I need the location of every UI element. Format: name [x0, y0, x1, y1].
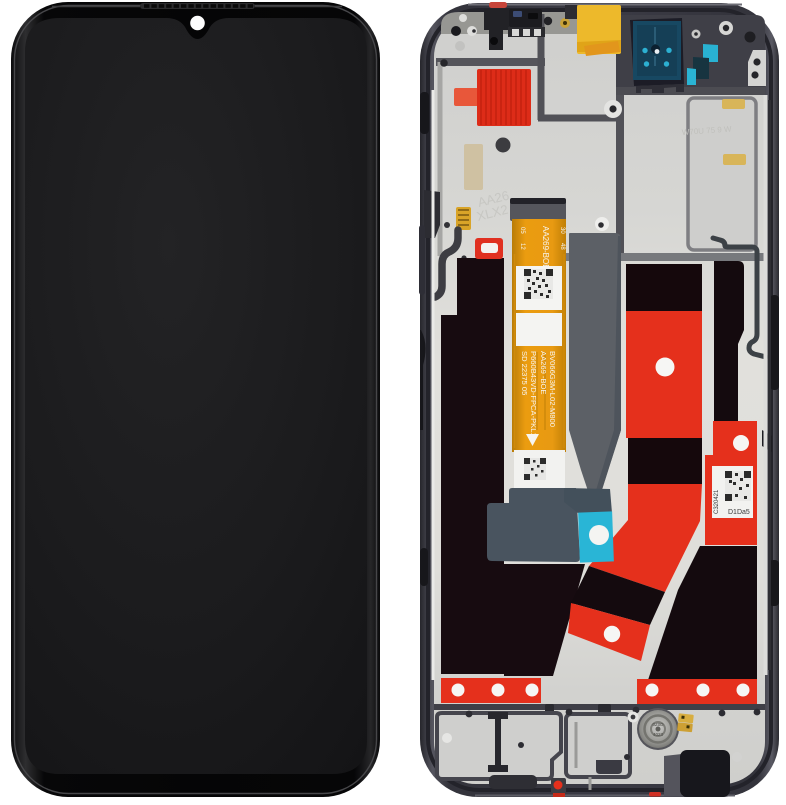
svg-text:AA269-BOE: AA269-BOE: [541, 226, 550, 270]
svg-text:SD 22375 05: SD 22375 05: [520, 351, 529, 395]
svg-text:C320421: C320421: [714, 489, 720, 514]
svg-text:P660B43VD-FPCA-PKL1: P660B43VD-FPCA-PKL1: [529, 351, 538, 437]
svg-text:AA269 -BOE: AA269 -BOE: [539, 351, 548, 394]
svg-text:30: 30: [559, 227, 565, 234]
svg-text:48: 48: [559, 243, 565, 250]
svg-text:0Z0D: 0Z0D: [652, 722, 664, 727]
svg-text:12: 12: [519, 243, 525, 250]
svg-text:05: 05: [519, 227, 525, 234]
svg-text:D1Da5: D1Da5: [728, 509, 750, 516]
svg-text:4023: 4023: [653, 732, 664, 737]
svg-text:BV066G3M-L02-M800: BV066G3M-L02-M800: [548, 351, 557, 427]
